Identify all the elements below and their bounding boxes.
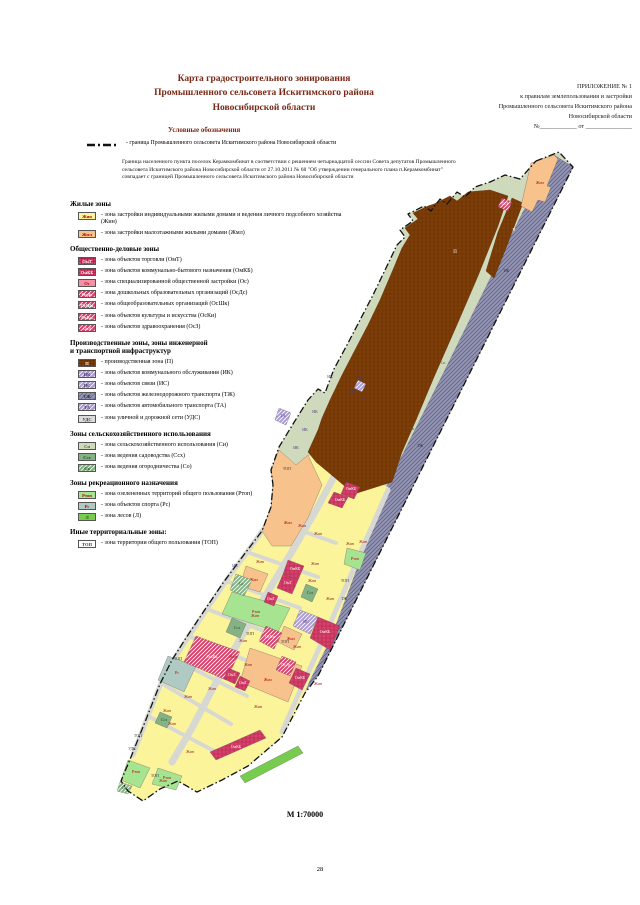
map-zone-label: Жин xyxy=(308,578,317,583)
legend-item-Жин: Жин- зона застройки индивидуальными жилы… xyxy=(78,212,405,226)
map-parcel-label: Жмл xyxy=(264,677,272,682)
legend-boundary-item: - граница Промышленного сельсовета Искит… xyxy=(86,140,366,149)
legend-item-ОсЗ: ОсЗ- зона объектов здравоохранения (ОсЗ) xyxy=(78,324,405,332)
appendix-line-4: Новосибирской области xyxy=(388,112,632,122)
legend-section-title: Зоны рекреационного назначения xyxy=(70,479,405,487)
boundary-item-text: - граница Промышленного сельсовета Искит… xyxy=(126,140,336,149)
legend-item-ОсШк: ОсШк- зона общеобразовательных организац… xyxy=(78,301,405,309)
legend-section-title: Общественно-деловые зоны xyxy=(70,245,405,253)
map-zone-label: ИК xyxy=(232,563,238,568)
legend-item-desc: - зона ведения огородничества (Со) xyxy=(101,464,192,471)
map-zone-label: Жин xyxy=(159,778,168,783)
map-parcel-label: ОмТ xyxy=(239,680,247,685)
legend-item-desc: - зона уличной и дорожной сети (УДС) xyxy=(101,415,200,422)
legend-section-title: Зоны сельскохозяйственного использования xyxy=(70,430,405,438)
map-zone-label: П xyxy=(453,250,457,255)
map-zone-label: Жин xyxy=(208,686,217,691)
legend-item-ИС: ИС- зона объектов связи (ИС) xyxy=(78,381,405,389)
legend-swatch-l: Л xyxy=(78,513,96,521)
appendix-line-3: Промышленного сельсовета Искитимского ра… xyxy=(388,102,632,112)
legend-item-desc: - зона объектов культуры и искусства (Ос… xyxy=(101,313,216,320)
legend-item-Си: Си- зона сельскохозяйственного использов… xyxy=(78,442,405,450)
legend-item-ТЖ: ТЖ- зона объектов железнодорожного транс… xyxy=(78,392,405,400)
legend-item-Жмл: Жмл- зона застройки малоэтажными жилыми … xyxy=(78,230,405,238)
legend-item-desc: - зона территории общего пользования (ТО… xyxy=(101,540,218,547)
legend-section-title: Иные территориальные зоны: xyxy=(70,528,405,536)
legend-swatch-si: Си xyxy=(78,442,96,450)
map-zone-label: ТОП xyxy=(151,773,159,778)
map-parcel-label: Со xyxy=(239,581,244,586)
legend-section-title: Производственные зоны, зоны инженерной и… xyxy=(70,339,405,355)
map-parcel-label: ОмКБ xyxy=(320,629,331,634)
map-parcel-label: Ртоп xyxy=(132,769,141,774)
legend-swatch-ik: ИК xyxy=(78,370,96,378)
page-number: 28 xyxy=(0,866,640,873)
title-line-3: Новосибирской области xyxy=(103,101,425,115)
legend-swatch-uds: УДС xyxy=(78,415,96,423)
map-zone-label: Жин xyxy=(293,644,302,649)
legend-item-desc: - производственная зона (П) xyxy=(101,359,173,366)
legend-item-ОмТ: ОмТ- зона объектов торговли (ОмТ) xyxy=(78,257,405,265)
map-zone-label: Жин xyxy=(254,704,263,709)
legend-item-П: П- производственная зона (П) xyxy=(78,359,405,367)
map-zone-label: Жин xyxy=(184,694,193,699)
map-parcel-label: ОмКБ xyxy=(290,566,301,571)
map-zone-label: ТЖ xyxy=(417,443,423,448)
legend-section-1: Общественно-деловые зоныОмТ- зона объект… xyxy=(70,245,405,332)
map-zone-label: УДС xyxy=(128,746,136,751)
legend-item-Рс: Рс- зона объектов спорта (Рс) xyxy=(78,502,405,510)
title-line-1: Карта градостроительного зонирования xyxy=(103,72,425,86)
map-zone-label: ТОП xyxy=(174,656,182,661)
map-zone-label: ТОП xyxy=(246,631,254,636)
legend-swatch-rs: Рс xyxy=(78,502,96,510)
legend-swatch-omt: ОмТ xyxy=(78,257,96,265)
map-parcel-label: ОмТ xyxy=(228,672,236,677)
map-zone-label: ТОП xyxy=(341,578,349,583)
page-title: Карта градостроительного зонирования Про… xyxy=(103,72,425,115)
map-zone-label: Жин xyxy=(256,559,265,564)
legend-item-Л: Л- зона лесов (Л) xyxy=(78,513,405,521)
legend-swatch-zhin: Жин xyxy=(78,212,96,220)
legend-item-desc: - зона лесов (Л) xyxy=(101,513,141,520)
map-parcel-label: Ссх xyxy=(161,717,167,722)
map-zone-label: Жин xyxy=(229,654,238,659)
legend-item-ТОП: ТОП- зона территории общего пользования … xyxy=(78,540,405,548)
legend-swatch-os: Ос xyxy=(78,279,96,287)
legend-item-УДС: УДС- зона уличной и дорожной сети (УДС) xyxy=(78,415,405,423)
map-zone-label: Жин xyxy=(168,721,177,726)
appendix-block: ПРИЛОЖЕНИЕ № 1 к правилам землепользован… xyxy=(388,82,632,132)
legend-item-desc: - зона застройки индивидуальными жилыми … xyxy=(101,212,356,226)
legend-section-4: Зоны рекреационного назначенияРтоп- зона… xyxy=(70,479,405,521)
legend-item-Ртоп: Ртоп- зона озелененных территорий общего… xyxy=(78,491,405,499)
map-zone-label: Жин xyxy=(163,708,172,713)
map-parcel-label: ОмКБ xyxy=(231,744,242,749)
legend-swatch-so: Со xyxy=(78,464,96,472)
legend-item-desc: - зона объектов связи (ИС) xyxy=(101,381,169,388)
legend-item-desc: - зона сельскохозяйственного использован… xyxy=(101,442,228,449)
map-parcel-label: Жмл xyxy=(536,180,544,185)
legend-item-desc: - зона дошкольных образовательных органи… xyxy=(101,290,247,297)
map-zone-label: Жин xyxy=(239,638,248,643)
legend-item-desc: - зона объектов спорта (Рс) xyxy=(101,502,170,509)
map-zone-label: ТЖ xyxy=(341,596,347,601)
map-parcel-label: Ссх xyxy=(307,590,313,595)
map-zone-label: Жин xyxy=(314,681,323,686)
map-zone-label: ТЖ xyxy=(503,268,509,273)
legend-item-ОсДс: ОсДс- зона дошкольных образовательных ор… xyxy=(78,290,405,298)
legend-item-desc: - зона объектов железнодорожного транспо… xyxy=(101,392,235,399)
legend-item-ОсКи: ОсКи- зона объектов культуры и искусства… xyxy=(78,313,405,321)
legend-swatch-ssh: Ссх xyxy=(78,453,96,461)
legend-section-5: Иные территориальные зоны:ТОП- зона терр… xyxy=(70,528,405,548)
map-parcel-label: ОсШк xyxy=(207,654,218,659)
legend-section-3: Зоны сельскохозяйственного использования… xyxy=(70,430,405,472)
legend-swatch-zhml: Жмл xyxy=(78,230,96,238)
legend-sections: Жилые зоныЖин- зона застройки индивидуал… xyxy=(70,193,405,552)
map-scale-label: М 1:70000 xyxy=(287,810,323,819)
map-zone-label: Жин xyxy=(244,662,253,667)
map-zone-label: Жин xyxy=(186,749,195,754)
legend-item-desc: - зона ведения садоводства (Ссх) xyxy=(101,453,185,460)
map-parcel-label: ОмТ xyxy=(284,580,292,585)
legend-item-ИК: ИК- зона объектов коммунального обслужив… xyxy=(78,370,405,378)
legend-swatch-is: ИС xyxy=(78,381,96,389)
map-parcel-label: ОсЗ xyxy=(502,201,509,206)
document-page: ЖмлЖмлЖмлЖмлЖмлРтопРтопРтопРтопРсОмКБОмТ… xyxy=(0,0,640,905)
legend-section-title: Жилые зоны xyxy=(70,200,405,208)
legend-swatch-osshk: ОсШк xyxy=(78,301,96,309)
appendix-number-line: №____________ от _______________ xyxy=(388,122,632,132)
legend-item-desc: - зона специализированной общественной з… xyxy=(101,279,249,286)
title-line-2: Промышленного сельсовета Искитимского ра… xyxy=(103,86,425,100)
legend-item-desc: - зона общеобразовательных организаций (… xyxy=(101,301,229,308)
legend-section-0: Жилые зоныЖин- зона застройки индивидуал… xyxy=(70,200,405,238)
legend-swatch-rtop: Ртоп xyxy=(78,491,96,499)
legend-heading: Условные обозначения xyxy=(168,126,240,134)
legend-swatch-ta: ТА xyxy=(78,403,96,411)
legend-item-desc: - зона объектов автомобильного транспорт… xyxy=(101,403,226,410)
legend-swatch-osds: ОсДс xyxy=(78,290,96,298)
map-parcel-label: ОсКи xyxy=(265,634,275,639)
legend-item-desc: - зона объектов торговли (ОмТ) xyxy=(101,257,182,264)
legend-item-ОмКБ: ОмКБ- зона объектов коммунально-бытового… xyxy=(78,268,405,276)
legend-item-desc: - зона объектов коммунального обслуживан… xyxy=(101,370,233,377)
map-parcel-label: Ссх xyxy=(234,625,240,630)
map-zone-label: Жин xyxy=(311,561,320,566)
legend-item-Ос: Ос- зона специализированной общественной… xyxy=(78,279,405,287)
legend-swatch-osz: ОсЗ xyxy=(78,324,96,332)
legend-swatch-tzh: ТЖ xyxy=(78,392,96,400)
map-zone-label: ТОП xyxy=(281,639,289,644)
legend-item-Со: Со- зона ведения огородничества (Со) xyxy=(78,464,405,472)
map-parcel-label: Ртоп xyxy=(351,556,360,561)
legend-item-desc: - зона объектов здравоохранения (ОсЗ) xyxy=(101,324,200,331)
legend-item-desc: - зона объектов коммунально-бытового наз… xyxy=(101,268,253,275)
map-zone-label: ТОП xyxy=(134,733,142,738)
legend-swatch-top: ТОП xyxy=(78,540,96,548)
legend-item-desc: - зона озелененных территорий общего пол… xyxy=(101,491,252,498)
map-parcel-label: ОмКБ xyxy=(295,675,306,680)
map-zone-label: П xyxy=(513,227,516,232)
legend-item-Ссх: Ссх- зона ведения садоводства (Ссх) xyxy=(78,453,405,461)
map-zone-label: Жин xyxy=(251,613,260,618)
map-parcel-label: Рс xyxy=(175,670,179,675)
appendix-line-1: ПРИЛОЖЕНИЕ № 1 xyxy=(388,82,632,92)
map-parcel-label: ИС xyxy=(303,619,309,624)
legend-swatch-oski: ОсКи xyxy=(78,313,96,321)
legend-item-ТА: ТА- зона объектов автомобильного транспо… xyxy=(78,403,405,411)
map-zone-label: Жин xyxy=(326,596,335,601)
boundary-line-symbol xyxy=(86,141,120,149)
legend-swatch-omkb: ОмКБ xyxy=(78,268,96,276)
legend-section-2: Производственные зоны, зоны инженерной и… xyxy=(70,339,405,423)
appendix-line-2: к правилам землепользования и застройки xyxy=(388,92,632,102)
legend-item-desc: - зона застройки малоэтажными жилыми дом… xyxy=(101,230,245,237)
legend-swatch-p: П xyxy=(78,359,96,367)
map-parcel-label: ОмТ xyxy=(267,596,275,601)
boundary-note: Граница населенного пункта поселок Керам… xyxy=(122,159,458,182)
map-parcel-label: ОсДс xyxy=(281,662,290,667)
